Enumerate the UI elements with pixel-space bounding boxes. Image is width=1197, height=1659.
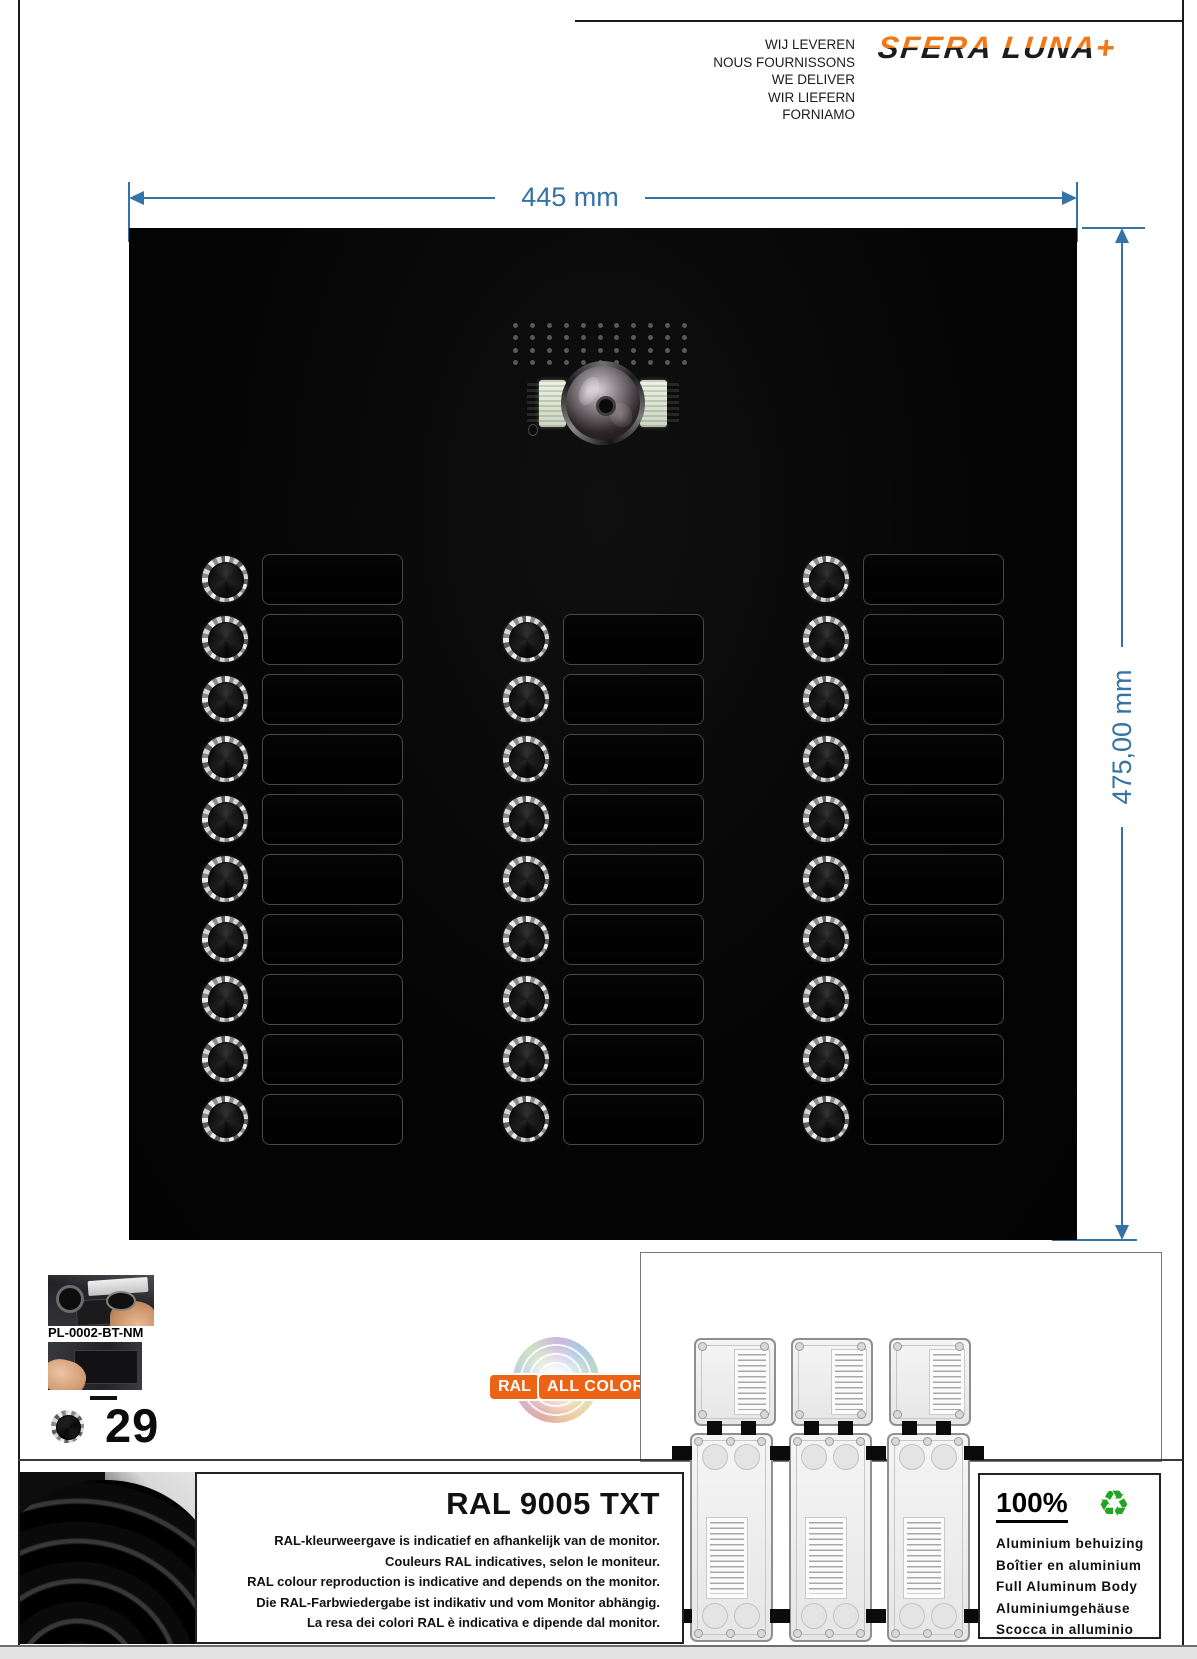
call-button-face [208, 742, 244, 778]
call-button [202, 1036, 248, 1082]
call-button [503, 1096, 549, 1142]
arrow-right-icon [1062, 191, 1077, 205]
knockout-hole [833, 1444, 859, 1470]
call-button [803, 1036, 849, 1082]
aluminium-info-box: 100% ♻ Aluminium behuizing Boîtier en al… [978, 1473, 1161, 1639]
screw-hole-icon [760, 1342, 769, 1351]
disclaimer-line: RAL-kleurweergave is indicatief en afhan… [207, 1531, 660, 1552]
speaker-hole [682, 348, 687, 353]
aluminium-line: Aluminium behuizing [996, 1533, 1149, 1555]
call-button-face [509, 922, 545, 958]
speaker-hole [581, 335, 586, 340]
screw-hole-icon [891, 1437, 900, 1446]
instruction-label [831, 1349, 867, 1415]
speaker-grille [513, 323, 687, 365]
box-connector [804, 1421, 819, 1435]
call-button-face [809, 802, 845, 838]
sfera-luna-logo: SFERA LUNA+ [876, 30, 1180, 66]
call-button-face [809, 862, 845, 898]
speaker-hole [530, 335, 535, 340]
call-button [803, 556, 849, 602]
call-button [202, 856, 248, 902]
extension-tick [1082, 227, 1145, 229]
call-button [503, 676, 549, 722]
black-cap-rings [20, 1480, 195, 1644]
speaker-hole [648, 323, 653, 328]
screw-hole-icon [893, 1410, 902, 1419]
nameplate [863, 854, 1004, 905]
nameplate [262, 914, 403, 965]
screw-hole-icon [760, 1410, 769, 1419]
call-button-face [208, 982, 244, 1018]
call-button-face [509, 802, 545, 838]
language-line: NOUS FOURNISSONS [555, 54, 855, 72]
speaker-hole [648, 348, 653, 353]
speaker-hole [665, 335, 670, 340]
ral9005-sample-photo [20, 1472, 195, 1644]
label-text-lines [710, 1522, 744, 1594]
knockout-hole [899, 1444, 925, 1470]
nameplate [863, 1034, 1004, 1085]
call-button-face [809, 922, 845, 958]
screw-hole-icon [955, 1410, 964, 1419]
call-button-face [809, 682, 845, 718]
call-button-face [509, 682, 545, 718]
speaker-hole [581, 348, 586, 353]
datasheet-page: WIJ LEVEREN NOUS FOURNISSONS WE DELIVER … [0, 0, 1197, 1659]
aluminium-line: Full Aluminum Body [996, 1576, 1149, 1598]
nameplate [563, 674, 704, 725]
page-footer-strip [0, 1645, 1197, 1659]
screw-hole-icon [857, 1410, 866, 1419]
nameplate [262, 794, 403, 845]
speaker-hole [564, 348, 569, 353]
call-button [202, 736, 248, 782]
label-text-lines [809, 1522, 843, 1594]
screw-hole-icon [793, 1629, 802, 1638]
screw-hole-icon [757, 1437, 766, 1446]
box-connector [770, 1609, 790, 1623]
screw-hole-icon [825, 1629, 834, 1638]
page-border-left [18, 0, 20, 1645]
screw-hole-icon [891, 1629, 900, 1638]
entrance-panel [129, 228, 1077, 1240]
language-line: FORNIAMO [555, 106, 855, 124]
knockout-hole [702, 1444, 728, 1470]
call-button [803, 976, 849, 1022]
call-button [503, 856, 549, 902]
language-line: WIJ LEVEREN [555, 36, 855, 54]
arrow-down-icon [1115, 1225, 1129, 1240]
call-button-face [208, 622, 244, 658]
call-button-face [208, 1102, 244, 1138]
nameplate [262, 1034, 403, 1085]
disclaimer-line: La resa dei colori RAL è indicativa e di… [207, 1613, 660, 1634]
screw-hole-icon [954, 1437, 963, 1446]
aluminium-line: Aluminiumgehäuse [996, 1598, 1149, 1620]
call-button-face [809, 562, 845, 598]
call-button [803, 616, 849, 662]
percent-label: 100% [996, 1487, 1068, 1523]
nameplate [863, 914, 1004, 965]
knockout-hole [899, 1603, 925, 1629]
knockout-hole [801, 1603, 827, 1629]
screw-hole-icon [795, 1342, 804, 1351]
call-button-face [208, 1042, 244, 1078]
speaker-hole [530, 348, 535, 353]
box-connector [741, 1421, 756, 1435]
nameplate [863, 614, 1004, 665]
call-button-face [509, 622, 545, 658]
screw-hole-icon [694, 1629, 703, 1638]
small-mounting-box [889, 1338, 971, 1426]
call-button [803, 1096, 849, 1142]
small-mounting-box [791, 1338, 873, 1426]
titleblock-top-line [575, 20, 1183, 22]
speaker-hole [648, 335, 653, 340]
box-connector [866, 1609, 886, 1623]
width-dimension-label: 445 mm [495, 181, 645, 214]
knockout-hole [801, 1444, 827, 1470]
disclaimer-line: RAL colour reproduction is indicative an… [207, 1572, 660, 1593]
aluminium-line: Scocca in alluminio [996, 1619, 1149, 1641]
call-button-face [509, 982, 545, 1018]
ral-color-disclaimer-box: RAL 9005 TXT RAL-kleurweergave is indica… [195, 1472, 684, 1644]
nameplate [863, 794, 1004, 845]
photo-button-icon [56, 1285, 84, 1313]
speaker-hole [513, 323, 518, 328]
nameplate [262, 554, 403, 605]
disclaimer-line: Die RAL-Farbwiedergabe ist indikativ und… [207, 1593, 660, 1614]
speaker-hole [530, 360, 535, 365]
arrow-up-icon [1115, 228, 1129, 243]
recycle-icon: ♻ [1098, 1490, 1130, 1520]
speaker-hole [530, 323, 535, 328]
call-button [803, 736, 849, 782]
speaker-hole [682, 360, 687, 365]
call-button [503, 916, 549, 962]
camera-lens-icon [596, 396, 616, 416]
camera-dome-icon [566, 366, 640, 440]
nameplate [262, 974, 403, 1025]
call-button [503, 616, 549, 662]
label-text-lines [907, 1522, 941, 1594]
disclaimer-line: Couleurs RAL indicatives, selon le monit… [207, 1552, 660, 1573]
tall-mounting-box [690, 1433, 773, 1642]
call-button-face [509, 1042, 545, 1078]
call-button-face [509, 1102, 545, 1138]
call-button [202, 556, 248, 602]
call-button-face [809, 1042, 845, 1078]
call-button-face [208, 922, 244, 958]
ral-color-title: RAL 9005 TXT [207, 1486, 660, 1522]
instruction-label [706, 1517, 748, 1599]
speaker-hole [564, 360, 569, 365]
call-button [503, 736, 549, 782]
call-button-face [208, 862, 244, 898]
camera-flange-left [527, 383, 539, 425]
page-border-right [1182, 0, 1184, 1645]
label-text-lines [933, 1354, 961, 1410]
microphone-hole-icon [528, 424, 538, 436]
delivery-languages: WIJ LEVEREN NOUS FOURNISSONS WE DELIVER … [555, 36, 855, 124]
nameplate [563, 734, 704, 785]
speaker-hole [631, 360, 636, 365]
photo-key-tool [106, 1291, 136, 1311]
screw-hole-icon [893, 1342, 902, 1351]
call-button-face [56, 1415, 81, 1440]
call-button [803, 916, 849, 962]
speaker-hole [547, 360, 552, 365]
call-button-face [509, 742, 545, 778]
nameplate [563, 854, 704, 905]
box-connector [964, 1446, 984, 1460]
nameplate [863, 974, 1004, 1025]
call-button [202, 796, 248, 842]
nameplate [262, 614, 403, 665]
call-button-face [809, 1102, 845, 1138]
screw-hole-icon [955, 1342, 964, 1351]
box-connector [672, 1446, 692, 1460]
speaker-hole [631, 335, 636, 340]
speaker-hole [648, 360, 653, 365]
screw-hole-icon [923, 1437, 932, 1446]
tall-mounting-box [789, 1433, 872, 1642]
label-text-lines [738, 1354, 766, 1410]
nameplate [262, 854, 403, 905]
knockout-hole [734, 1444, 760, 1470]
call-button-face [208, 682, 244, 718]
product-photo-nameplate-insert [48, 1342, 142, 1390]
call-button [503, 976, 549, 1022]
language-line: WE DELIVER [555, 71, 855, 89]
speaker-hole [547, 348, 552, 353]
screw-hole-icon [726, 1629, 735, 1638]
screw-hole-icon [757, 1629, 766, 1638]
product-code-label: PL-0002-BT-NM [48, 1325, 208, 1340]
arrow-left-icon [129, 191, 144, 205]
call-button-face [809, 982, 845, 1018]
speaker-hole [665, 323, 670, 328]
nameplate [863, 734, 1004, 785]
speaker-hole [682, 323, 687, 328]
speaker-hole [513, 335, 518, 340]
screw-hole-icon [857, 1342, 866, 1351]
call-button [202, 976, 248, 1022]
knockout-hole [931, 1603, 957, 1629]
height-dimension-label: 475,00 mm [1102, 647, 1142, 827]
nameplate [863, 554, 1004, 605]
nameplate [863, 674, 1004, 725]
call-button-face [809, 622, 845, 658]
speaker-hole [513, 348, 518, 353]
speaker-hole [631, 323, 636, 328]
call-button-icon [51, 1410, 84, 1443]
screw-hole-icon [698, 1342, 707, 1351]
call-button [202, 676, 248, 722]
nameplate [563, 614, 704, 665]
speaker-hole [547, 323, 552, 328]
knockout-hole [702, 1603, 728, 1629]
call-button [202, 916, 248, 962]
speaker-hole [598, 348, 603, 353]
camera-ring [561, 361, 645, 445]
box-connector [707, 1421, 722, 1435]
nameplate [563, 1034, 704, 1085]
speaker-hole [564, 323, 569, 328]
box-connector [770, 1446, 790, 1460]
section-divider-line [18, 1459, 1183, 1461]
knockout-hole [734, 1603, 760, 1629]
language-line: WIR LIEFERN [555, 89, 855, 107]
box-connector [838, 1421, 853, 1435]
nameplate [863, 1094, 1004, 1145]
call-button [503, 1036, 549, 1082]
call-button-face [208, 802, 244, 838]
screw-hole-icon [923, 1629, 932, 1638]
small-mounting-box [694, 1338, 776, 1426]
instruction-label [903, 1517, 945, 1599]
nameplate [262, 1094, 403, 1145]
screw-hole-icon [694, 1437, 703, 1446]
instruction-label [929, 1349, 965, 1415]
ral-badge: RAL [488, 1373, 541, 1401]
screw-hole-icon [795, 1410, 804, 1419]
call-button-face [509, 862, 545, 898]
speaker-hole [513, 360, 518, 365]
call-button-face [809, 742, 845, 778]
call-button [803, 856, 849, 902]
recycle-header: 100% ♻ [996, 1487, 1149, 1523]
speaker-hole [682, 335, 687, 340]
screw-hole-icon [825, 1437, 834, 1446]
call-button [803, 676, 849, 722]
product-photo-button-tool [48, 1275, 154, 1326]
screw-hole-icon [954, 1629, 963, 1638]
speaker-hole [547, 335, 552, 340]
nameplate [563, 1094, 704, 1145]
tall-mounting-box [887, 1433, 970, 1642]
camera-flange-right [667, 383, 679, 425]
speaker-hole [598, 323, 603, 328]
nameplate [563, 914, 704, 965]
speaker-hole [614, 323, 619, 328]
nameplate [262, 734, 403, 785]
screw-hole-icon [726, 1437, 735, 1446]
call-button [202, 1096, 248, 1142]
instruction-label [805, 1517, 847, 1599]
label-text-lines [835, 1354, 863, 1410]
aluminium-line: Boîtier en aluminium [996, 1555, 1149, 1577]
screw-hole-icon [856, 1437, 865, 1446]
logo-plus-icon: + [1095, 30, 1119, 65]
nameplate [563, 974, 704, 1025]
button-count: 29 [105, 1398, 159, 1453]
screw-hole-icon [856, 1629, 865, 1638]
call-button [803, 796, 849, 842]
box-connector [936, 1421, 951, 1435]
nameplate [262, 674, 403, 725]
screw-hole-icon [793, 1437, 802, 1446]
box-connector [902, 1421, 917, 1435]
call-button [503, 796, 549, 842]
knockout-hole [833, 1603, 859, 1629]
call-button [202, 616, 248, 662]
speaker-hole [631, 348, 636, 353]
call-button-face [208, 562, 244, 598]
knockout-hole [931, 1444, 957, 1470]
speaker-hole [665, 360, 670, 365]
ral-all-colors-logo: RAL ALL COLORS [488, 1337, 648, 1423]
speaker-hole [564, 335, 569, 340]
screw-hole-icon [698, 1410, 707, 1419]
speaker-hole [614, 335, 619, 340]
speaker-hole [665, 348, 670, 353]
instruction-label [734, 1349, 770, 1415]
box-connector [866, 1446, 886, 1460]
speaker-hole [581, 323, 586, 328]
speaker-hole [614, 348, 619, 353]
nameplate [563, 794, 704, 845]
speaker-hole [598, 335, 603, 340]
